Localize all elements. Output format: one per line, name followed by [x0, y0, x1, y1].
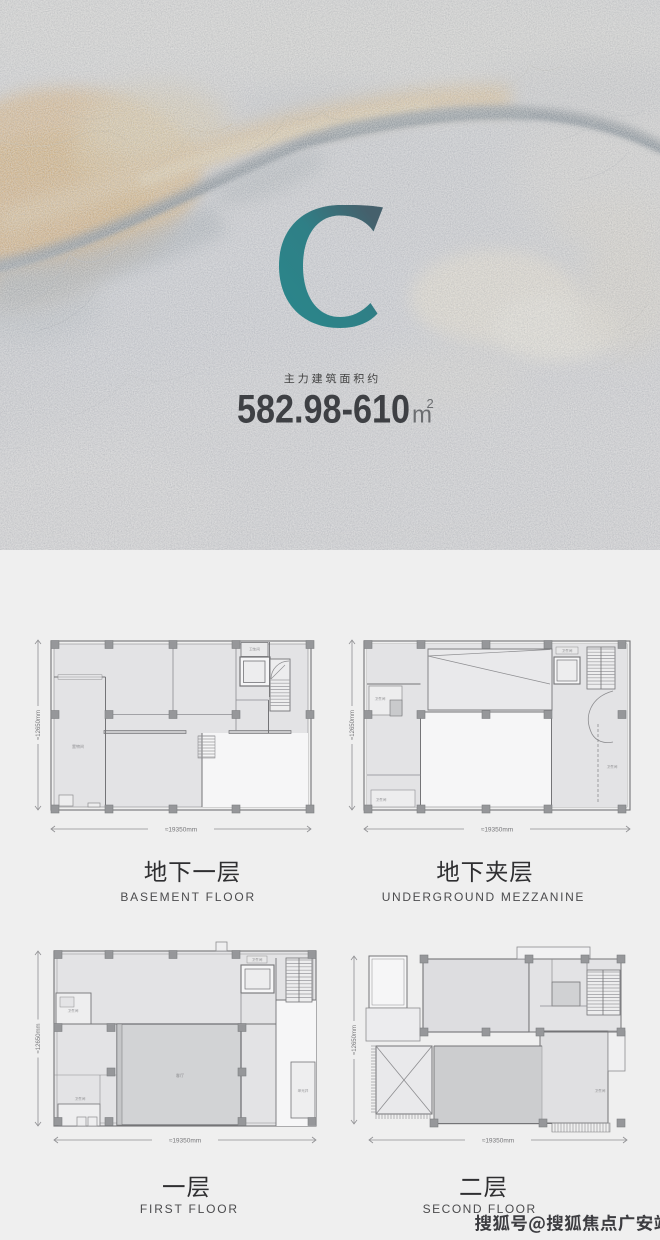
svg-text:≈12650mm: ≈12650mm — [36, 710, 42, 740]
svg-text:≈19350mm: ≈19350mm — [169, 1137, 201, 1144]
svg-text:UNDERGROUND MEZZANINE: UNDERGROUND MEZZANINE — [382, 890, 585, 904]
svg-text:2: 2 — [427, 396, 434, 411]
svg-text:≈12650mm: ≈12650mm — [352, 1025, 358, 1055]
svg-text:≈19350mm: ≈19350mm — [165, 826, 197, 833]
svg-text:SECOND FLOOR: SECOND FLOOR — [423, 1202, 537, 1216]
svg-text:≈19350mm: ≈19350mm — [482, 1137, 514, 1144]
svg-text:BASEMENT FLOOR: BASEMENT FLOOR — [120, 890, 256, 904]
svg-text:582.98-610: 582.98-610 — [237, 388, 410, 432]
svg-text:≈19350mm: ≈19350mm — [481, 826, 513, 833]
svg-text:≈12650mm: ≈12650mm — [350, 710, 356, 740]
svg-text:FIRST FLOOR: FIRST FLOOR — [140, 1202, 239, 1216]
svg-text:≈12650mm: ≈12650mm — [36, 1024, 42, 1054]
